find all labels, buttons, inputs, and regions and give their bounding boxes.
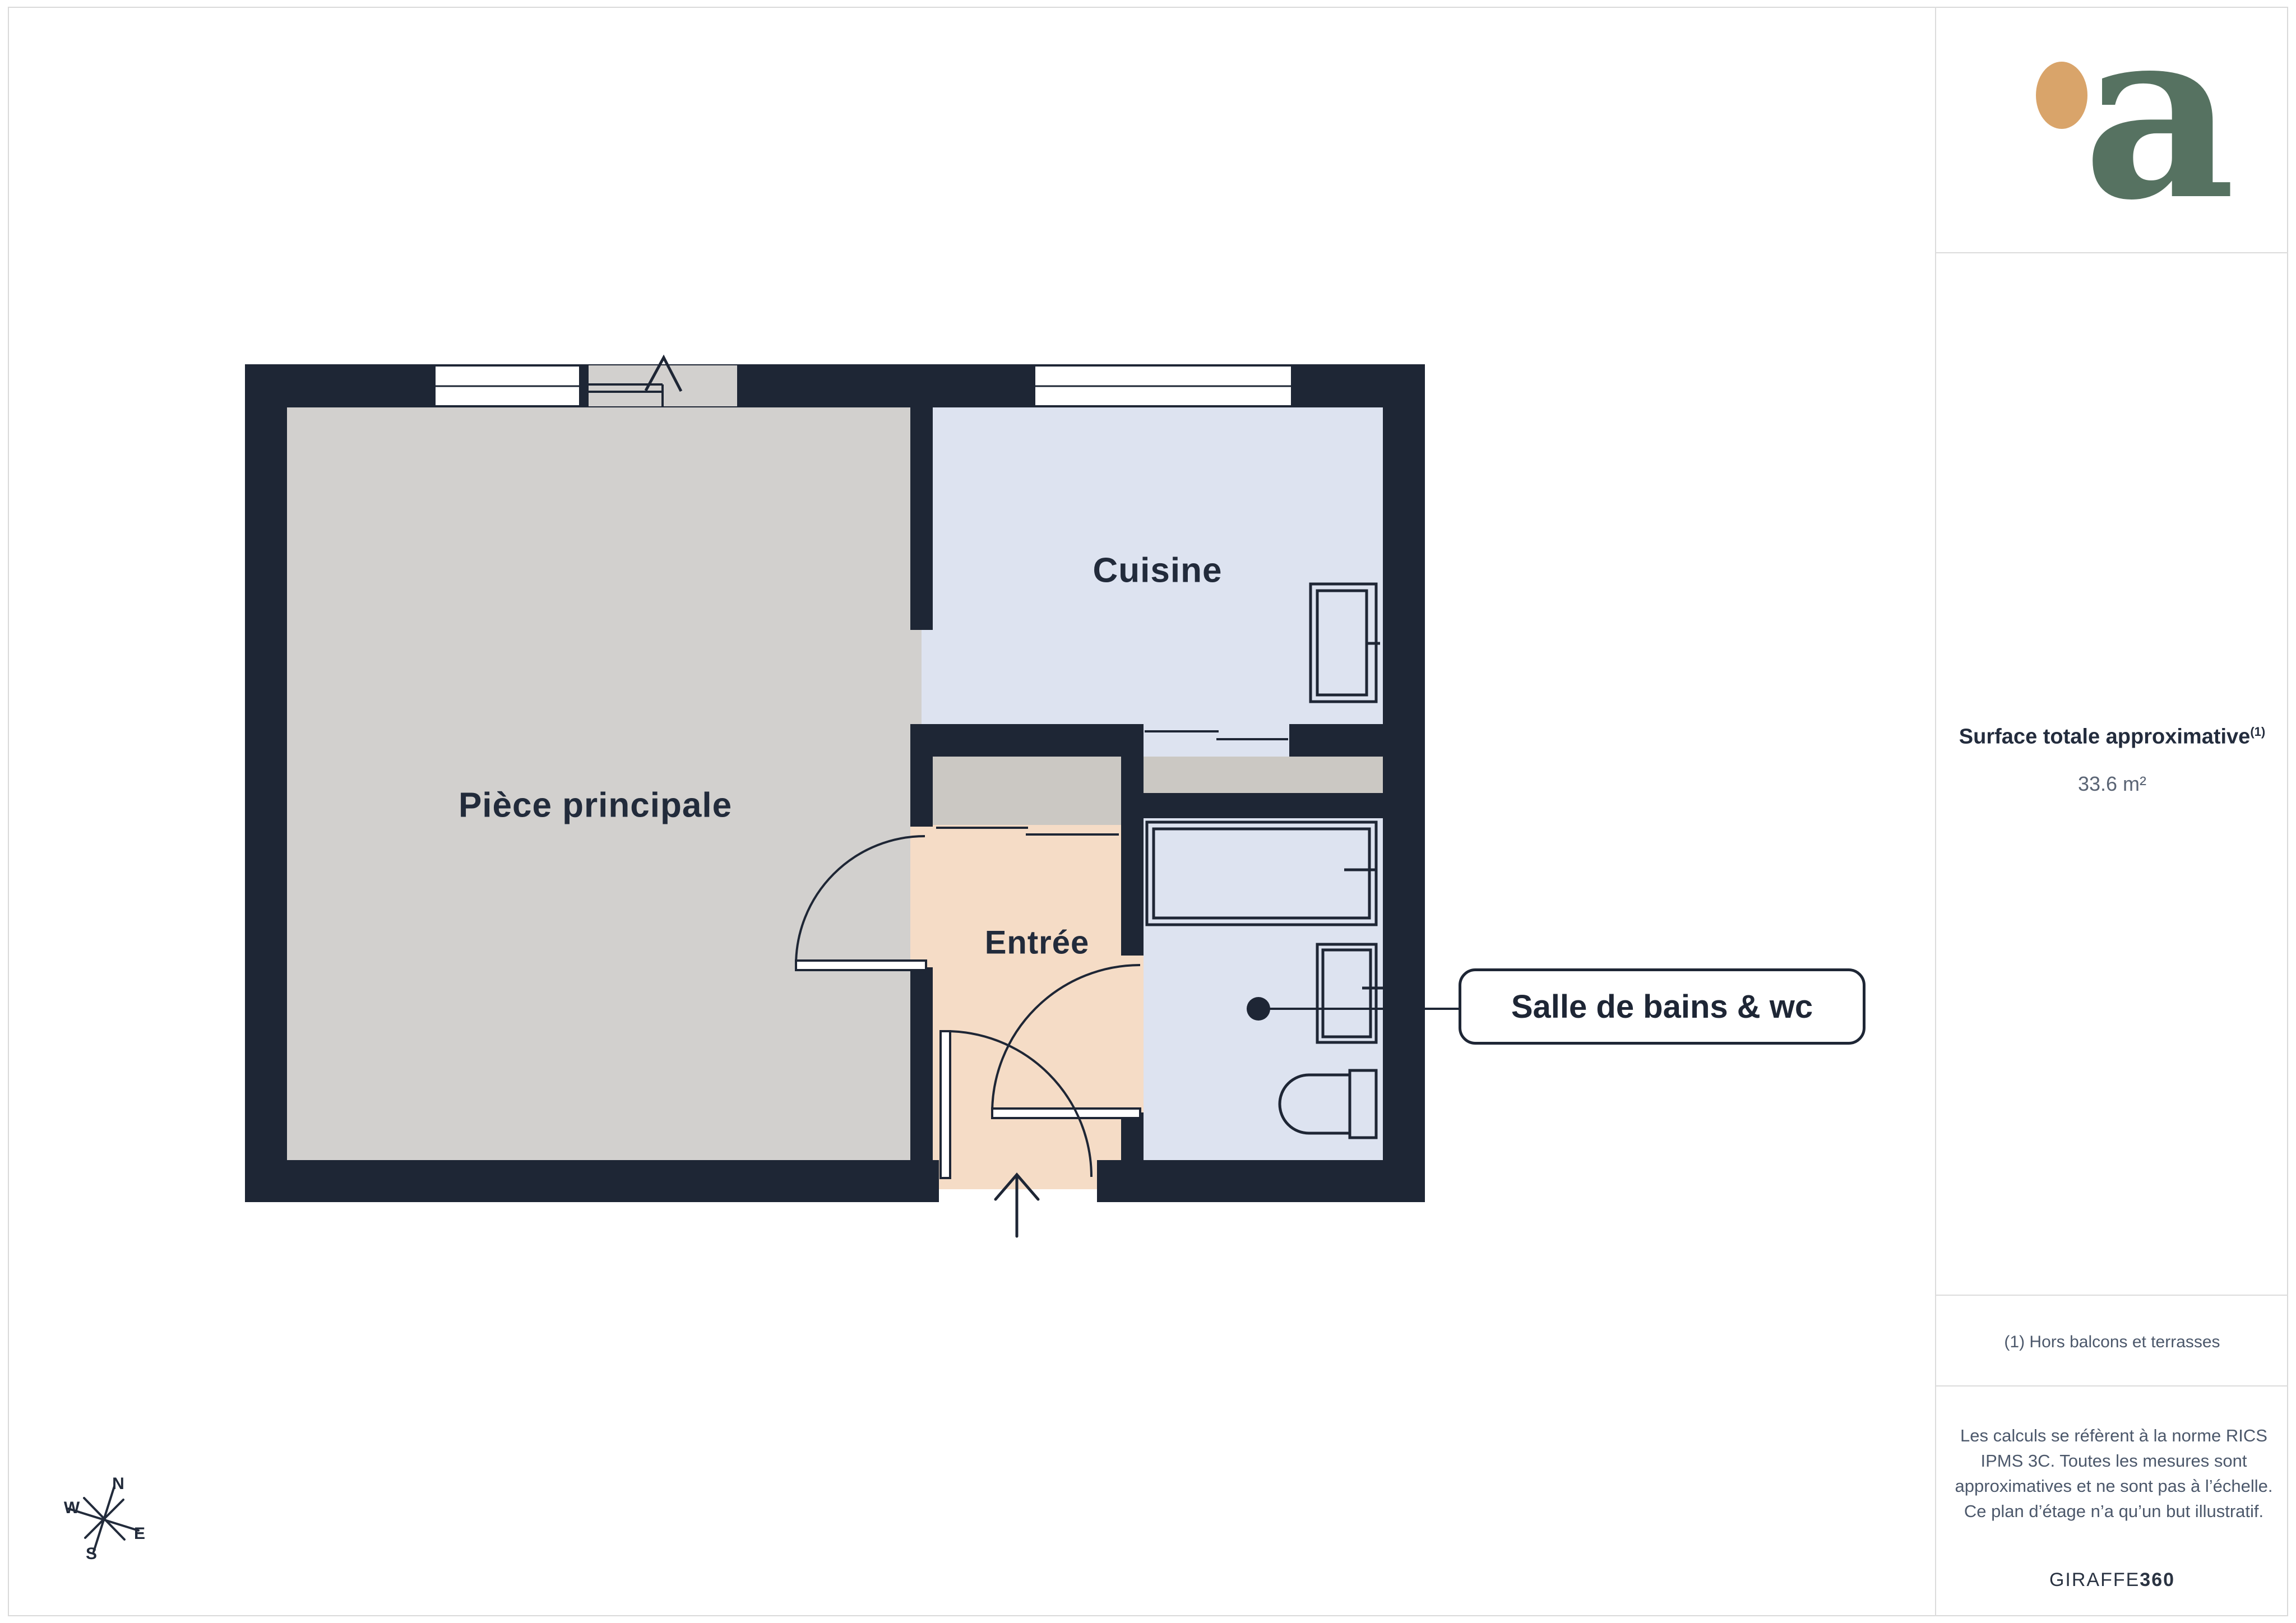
closet-left <box>933 757 1121 825</box>
wall-left <box>245 364 287 1202</box>
wall-right <box>1383 364 1425 1202</box>
bathroom-callout: Salle de bains & wc <box>1459 968 1865 1045</box>
doorway-bath-fill <box>1121 956 1144 1112</box>
door-leaf-bathroom <box>992 1109 1140 1118</box>
compass-east-label: E <box>134 1524 145 1543</box>
compass-rose-icon <box>68 1486 138 1552</box>
wall-stub-bath-top <box>1121 757 1144 956</box>
logo-dot-icon <box>2036 62 2087 129</box>
wall-kitchen-bottom-right <box>1289 724 1383 757</box>
floor-plan: a <box>0 0 2296 1623</box>
room-label-entree: Entrée <box>985 924 1090 962</box>
brand-wordmark: GIRAFFE360 <box>1936 1569 2288 1591</box>
room-label-piece-principale: Pièce principale <box>459 786 732 826</box>
floorplan-page: a Pièce principale Cuisine Entrée Salle … <box>0 0 2296 1623</box>
surface-title: Surface totale approximative(1) <box>1936 725 2288 749</box>
brand-suffix: 360 <box>2140 1569 2175 1590</box>
sidebar-left-border <box>1935 7 1936 1616</box>
sidebar-divider-footnote-bottom <box>1936 1385 2288 1386</box>
compass-west-label: W <box>64 1499 80 1518</box>
closet-right <box>1144 757 1383 793</box>
callout-dot <box>1247 997 1270 1021</box>
compass-south-label: S <box>86 1545 97 1564</box>
wall-stub-entree-top <box>910 757 933 827</box>
compass-north-label: N <box>112 1474 124 1494</box>
wall-bottom-right <box>1097 1160 1425 1202</box>
disclaimer-text: Les calculs se réfèrent à la norme RICS … <box>1943 1423 2285 1524</box>
wall-closet-bath <box>1144 793 1383 818</box>
logo-letter: a <box>2083 0 2235 252</box>
surface-title-superscript: (1) <box>2250 725 2265 739</box>
floor-piece-principale <box>287 407 922 1160</box>
brand-name: GIRAFFE <box>2049 1569 2140 1590</box>
room-label-cuisine: Cuisine <box>1093 551 1223 591</box>
sidebar-divider-footnote-top <box>1936 1295 2288 1296</box>
surface-value: 33.6 m² <box>1936 772 2288 796</box>
door-leaf-main <box>796 961 926 970</box>
footnote: (1) Hors balcons et terrasses <box>1936 1333 2288 1352</box>
wall-stub-entree-bottom <box>910 967 933 1160</box>
wall-stub-bath-bottom <box>1121 1112 1144 1160</box>
surface-title-text: Surface totale approximative <box>1959 725 2251 749</box>
door-leaf-entry <box>941 1031 950 1178</box>
doorway-main-fill <box>910 827 933 967</box>
brand-logo: a <box>2036 0 2235 252</box>
wall-bottom-left <box>245 1160 939 1202</box>
callout-label: Salle de bains & wc <box>1511 988 1813 1026</box>
wall-main-kitchen <box>910 407 933 630</box>
wall-kitchen-bottom-left <box>910 724 1144 757</box>
sidebar-divider-logo <box>1936 252 2288 253</box>
